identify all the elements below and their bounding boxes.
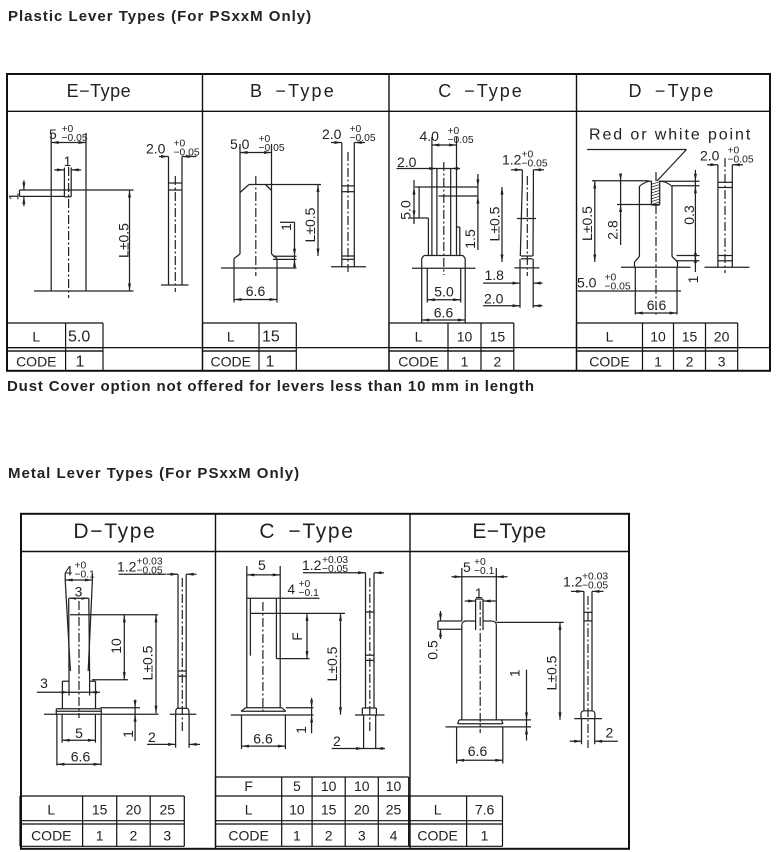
svg-text:15: 15 (682, 329, 698, 345)
svg-text:−0.05: −0.05 (582, 581, 608, 592)
svg-text:1: 1 (64, 154, 72, 169)
svg-text:−0.1: −0.1 (299, 588, 320, 599)
svg-text:1.5: 1.5 (462, 229, 478, 249)
svg-text:2: 2 (130, 828, 138, 844)
svg-text:D −Type: D −Type (629, 81, 716, 101)
svg-text:3: 3 (718, 354, 726, 370)
svg-text:1: 1 (654, 354, 662, 370)
svg-text:6.6: 6.6 (468, 743, 488, 759)
svg-text:CODE: CODE (398, 354, 438, 370)
svg-text:1: 1 (121, 730, 136, 738)
svg-text:1: 1 (96, 828, 104, 844)
svg-text:−0.05: −0.05 (522, 159, 548, 170)
svg-text:6.6: 6.6 (246, 283, 266, 299)
svg-text:1: 1 (266, 354, 275, 371)
svg-text:1: 1 (461, 354, 469, 370)
svg-text:10: 10 (321, 778, 337, 794)
svg-text:5.0: 5.0 (434, 284, 454, 300)
svg-text:2: 2 (325, 828, 333, 844)
svg-text:6.6: 6.6 (647, 297, 667, 313)
svg-text:D−Type: D−Type (73, 520, 156, 543)
svg-text:1: 1 (279, 223, 294, 231)
svg-text:Dust Cover option not offered: Dust Cover option not offered for levers… (7, 378, 535, 395)
svg-text:2.0: 2.0 (700, 148, 720, 164)
svg-text:1.2: 1.2 (117, 559, 137, 575)
svg-text:L: L (415, 329, 423, 345)
svg-text:4: 4 (390, 828, 398, 844)
svg-text:3: 3 (75, 584, 83, 600)
svg-text:L±0.5: L±0.5 (579, 206, 595, 241)
svg-text:−0.05: −0.05 (137, 566, 163, 577)
svg-text:5: 5 (293, 778, 301, 794)
svg-text:L: L (245, 802, 253, 818)
svg-text:1.2: 1.2 (502, 152, 522, 168)
svg-text:CODE: CODE (417, 828, 457, 844)
svg-text:−0.1: −0.1 (474, 566, 495, 577)
svg-text:C −Type: C −Type (259, 520, 354, 543)
svg-text:L: L (227, 329, 235, 345)
svg-text:7.6: 7.6 (475, 802, 495, 818)
svg-text:L±0.5: L±0.5 (302, 207, 318, 242)
svg-text:E−Type: E−Type (472, 520, 546, 543)
svg-text:L±0.5: L±0.5 (116, 223, 132, 258)
svg-text:3: 3 (40, 675, 48, 691)
svg-text:L: L (47, 802, 55, 818)
svg-text:L±0.5: L±0.5 (487, 206, 503, 241)
svg-text:2: 2 (333, 733, 341, 749)
svg-text:L±0.5: L±0.5 (324, 646, 340, 681)
svg-text:CODE: CODE (589, 354, 629, 370)
svg-text:10: 10 (457, 329, 473, 345)
svg-text:20: 20 (126, 802, 142, 818)
svg-text:1.2: 1.2 (563, 574, 583, 590)
svg-text:5: 5 (75, 725, 83, 741)
svg-text:1: 1 (293, 828, 301, 844)
svg-text:4: 4 (288, 582, 296, 597)
svg-text:1: 1 (294, 726, 309, 734)
svg-text:10: 10 (289, 802, 305, 818)
svg-text:L±0.5: L±0.5 (140, 645, 156, 680)
svg-text:10: 10 (650, 329, 666, 345)
svg-text:10: 10 (386, 778, 402, 794)
svg-text:10: 10 (108, 638, 124, 654)
svg-text:0.5: 0.5 (425, 640, 441, 660)
svg-text:CODE: CODE (16, 354, 56, 370)
svg-text:6.6: 6.6 (71, 749, 91, 765)
svg-text:L: L (606, 329, 614, 345)
svg-text:Plastic Lever Types (For PSxx: Plastic Lever Types (For PSxxM Only) (8, 8, 312, 25)
svg-text:2: 2 (686, 354, 694, 370)
svg-text:5: 5 (49, 126, 57, 142)
svg-text:E−Type: E−Type (67, 81, 132, 101)
svg-text:5.0: 5.0 (577, 275, 597, 291)
svg-text:CODE: CODE (31, 828, 71, 844)
svg-text:4.0: 4.0 (420, 128, 440, 144)
svg-text:1: 1 (508, 670, 523, 678)
svg-text:1: 1 (686, 276, 701, 284)
svg-text:15: 15 (262, 329, 280, 346)
svg-text:2.0: 2.0 (322, 126, 342, 142)
svg-text:1.8: 1.8 (485, 267, 505, 283)
svg-text:2: 2 (148, 729, 156, 745)
svg-text:15: 15 (321, 802, 337, 818)
svg-text:6.6: 6.6 (253, 731, 273, 747)
svg-text:2: 2 (606, 725, 614, 741)
svg-text:3: 3 (163, 828, 171, 844)
svg-text:1: 1 (7, 193, 22, 201)
svg-text:25: 25 (159, 802, 175, 818)
svg-text:2.0: 2.0 (397, 154, 417, 170)
svg-text:0.3: 0.3 (681, 205, 697, 225)
svg-text:−0.05: −0.05 (322, 564, 348, 575)
svg-text:15: 15 (92, 802, 108, 818)
svg-text:3: 3 (358, 828, 366, 844)
svg-text:10: 10 (354, 778, 370, 794)
svg-text:2.0: 2.0 (484, 291, 504, 307)
svg-text:L: L (434, 802, 442, 818)
svg-text:L: L (32, 329, 40, 345)
svg-text:Metal Lever Types (For PSxxM: Metal Lever Types (For PSxxM Only) (8, 465, 300, 482)
svg-text:1: 1 (76, 354, 85, 371)
svg-text:CODE: CODE (211, 354, 251, 370)
svg-text:F: F (290, 632, 305, 640)
svg-text:20: 20 (354, 802, 370, 818)
svg-text:−0.05: −0.05 (728, 155, 754, 166)
svg-text:5: 5 (463, 559, 471, 575)
svg-text:5.0: 5.0 (68, 329, 90, 346)
svg-text:L±0.5: L±0.5 (544, 655, 560, 690)
svg-text:5.0: 5.0 (398, 200, 414, 220)
svg-text:F: F (244, 778, 253, 794)
svg-text:2.8: 2.8 (605, 220, 621, 240)
svg-text:2.0: 2.0 (146, 141, 166, 157)
svg-text:C −Type: C −Type (438, 81, 524, 101)
svg-text:15: 15 (490, 329, 506, 345)
svg-text:CODE: CODE (228, 828, 268, 844)
svg-text:1.2: 1.2 (302, 557, 322, 573)
svg-text:B −Type: B −Type (250, 81, 336, 101)
svg-text:6.6: 6.6 (434, 305, 454, 321)
svg-text:2: 2 (494, 354, 502, 370)
svg-text:25: 25 (386, 802, 402, 818)
svg-text:1: 1 (481, 828, 489, 844)
svg-text:5: 5 (258, 557, 266, 573)
svg-text:Red or white point: Red or white point (589, 127, 752, 144)
svg-text:20: 20 (714, 329, 730, 345)
